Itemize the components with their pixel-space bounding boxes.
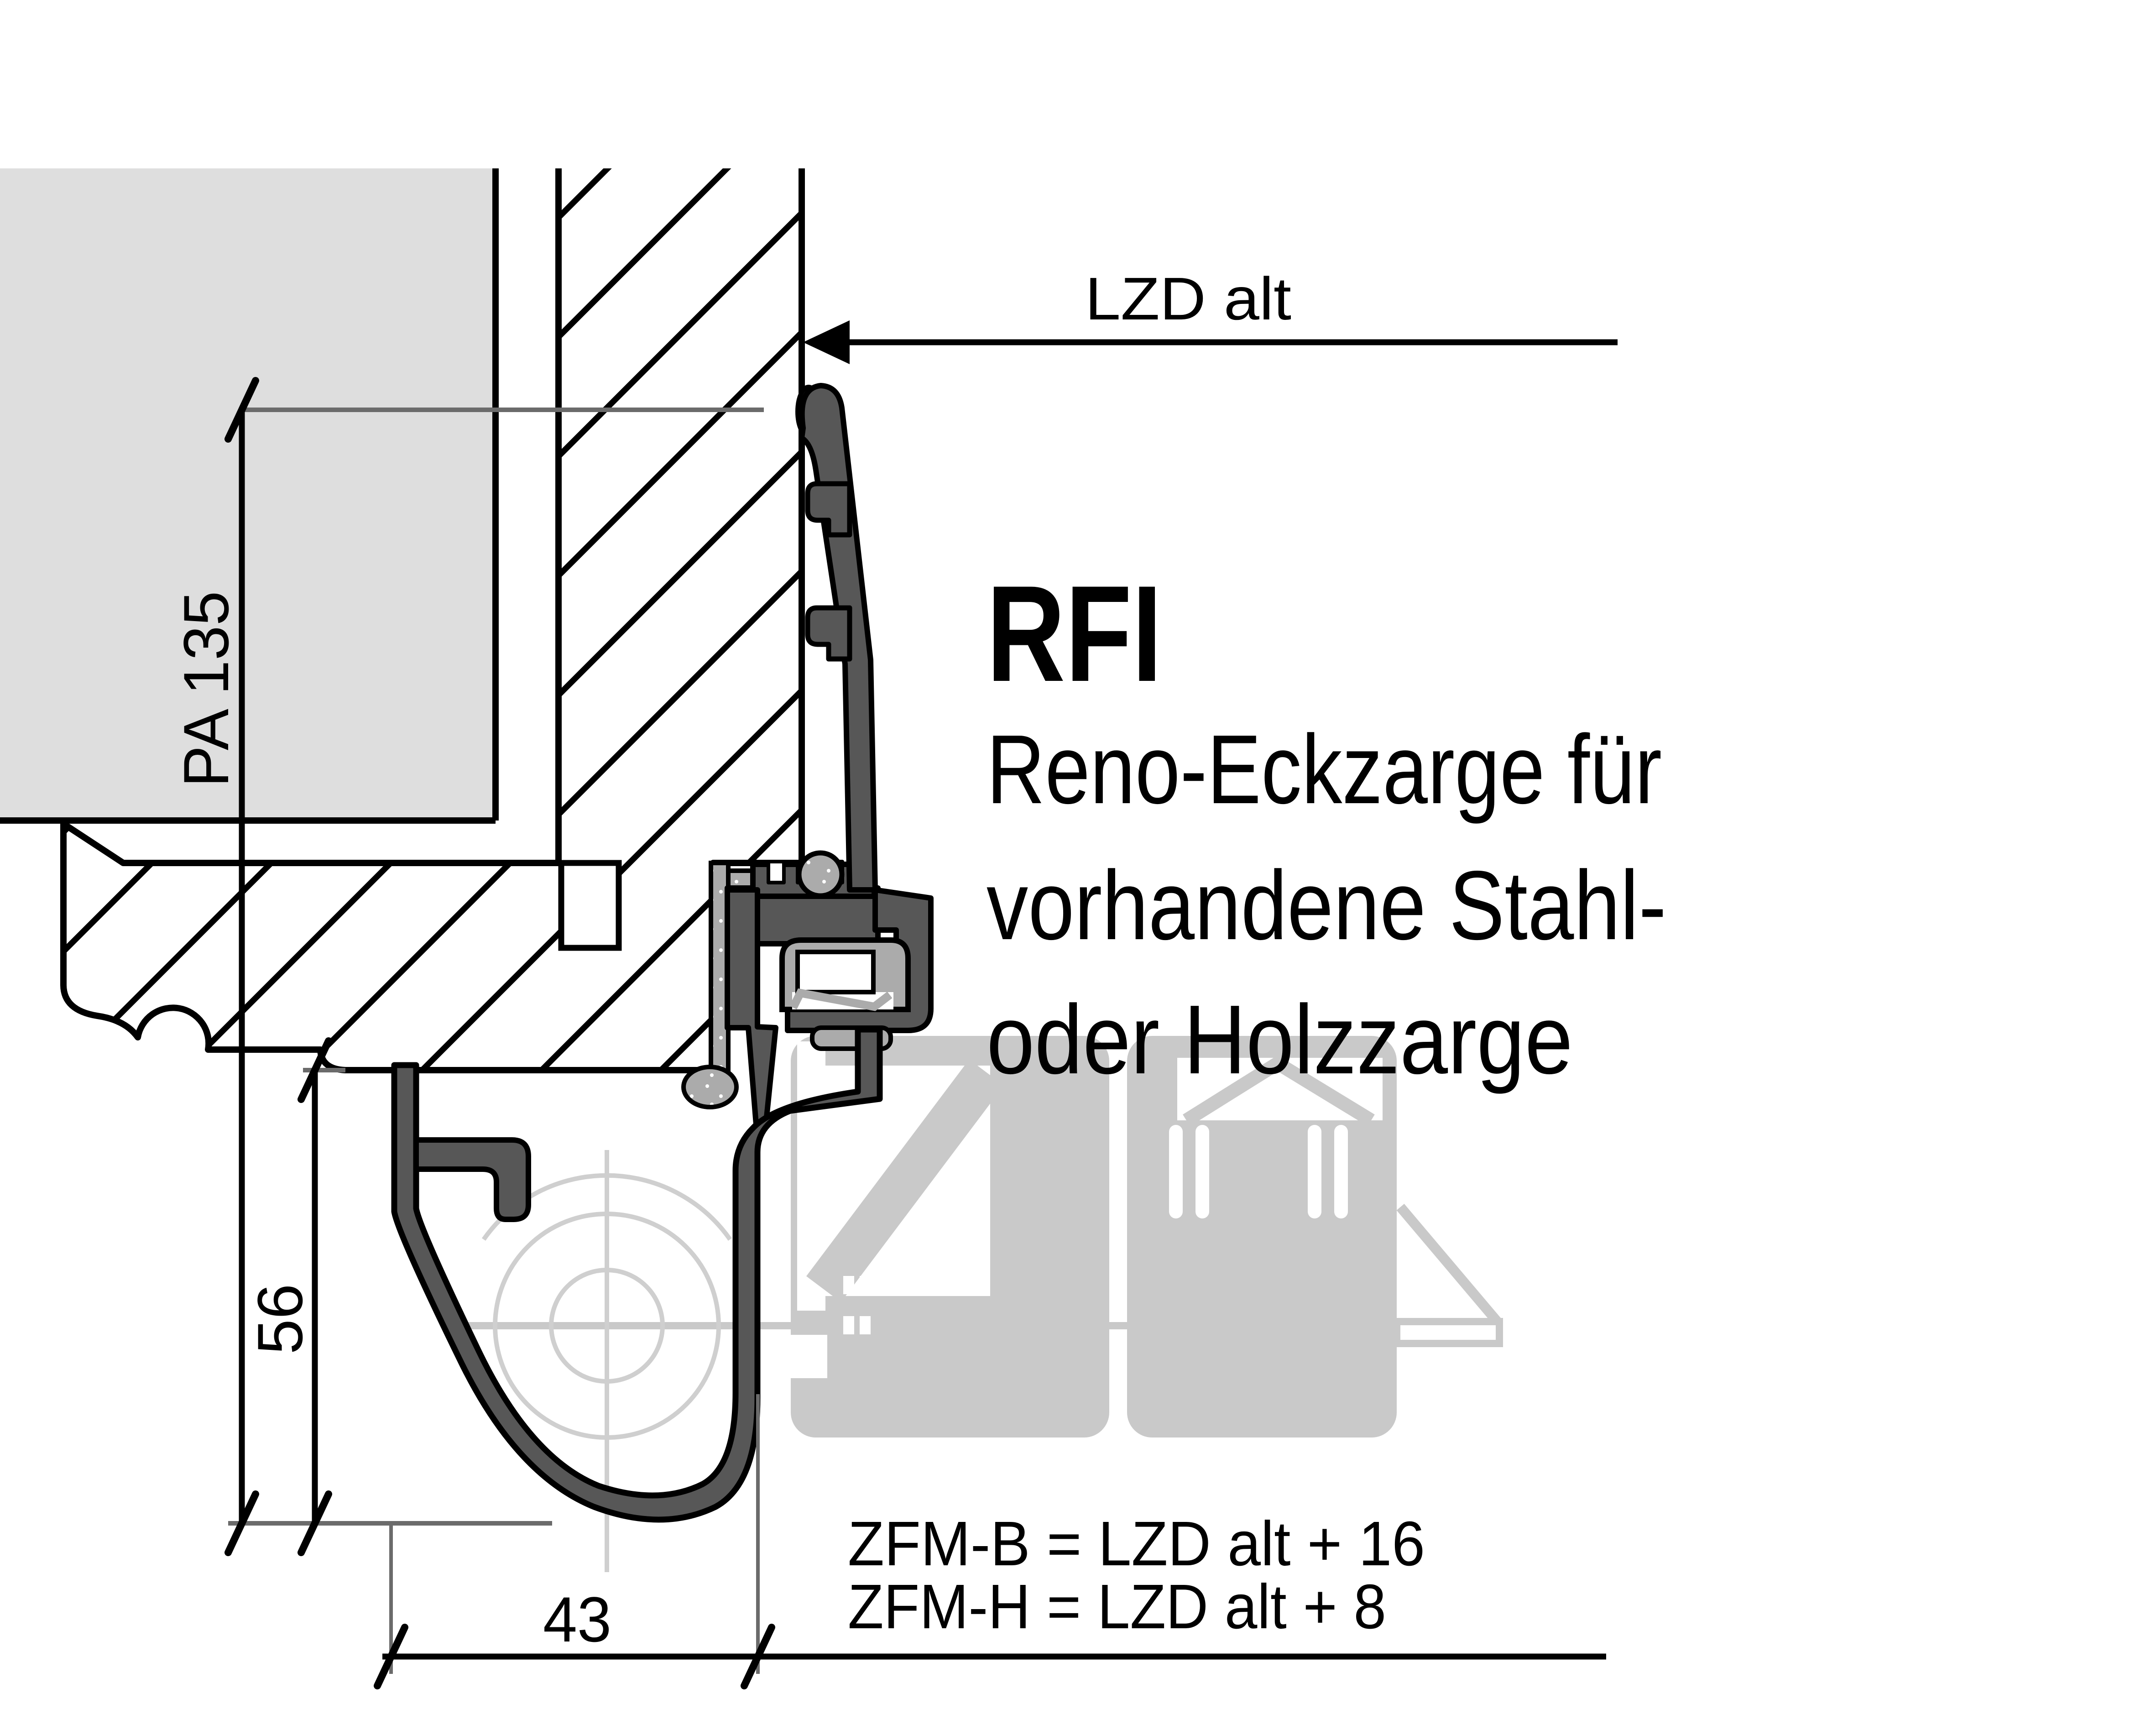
ghost-pointer-bar (1397, 1322, 1499, 1343)
product-description-line-1: Reno-Eckzarge für (987, 714, 1662, 824)
ghost-door-pictogram (791, 1036, 1499, 1437)
profile-clip-upper (808, 484, 850, 535)
profile-clip-lower (808, 608, 850, 659)
dimension-arrow-icon (803, 320, 850, 364)
dim-label-lzd-alt: LZD alt (1085, 265, 1291, 332)
dim-label-pa135: PA 135 (170, 591, 242, 787)
dim-label-43: 43 (543, 1584, 611, 1655)
product-description-line-2: vorhandene Stahl- (987, 850, 1666, 960)
technical-drawing-rfi-frame: PA 135 56 43 LZD alt RFI Reno-Eckzarge f… (0, 0, 2156, 1725)
product-code: RFI (987, 557, 1162, 710)
dim-label-56: 56 (244, 1284, 316, 1354)
formula-zfm-h: ZFM-H = LZD alt + 8 (848, 1572, 1386, 1642)
sealant-bottom-blob (684, 1067, 736, 1107)
gasket-window (798, 952, 873, 992)
ghost-pointer-diagonal (1400, 1207, 1498, 1322)
plaster-section (0, 168, 496, 821)
product-description-line-3: oder Holzzarge (987, 984, 1573, 1094)
seal-bead-circle (799, 853, 842, 896)
profile-click-rail (416, 1140, 528, 1219)
old-frame-rebate-notch (561, 863, 619, 948)
formula-zfm-b: ZFM-B = LZD alt + 16 (848, 1509, 1425, 1579)
